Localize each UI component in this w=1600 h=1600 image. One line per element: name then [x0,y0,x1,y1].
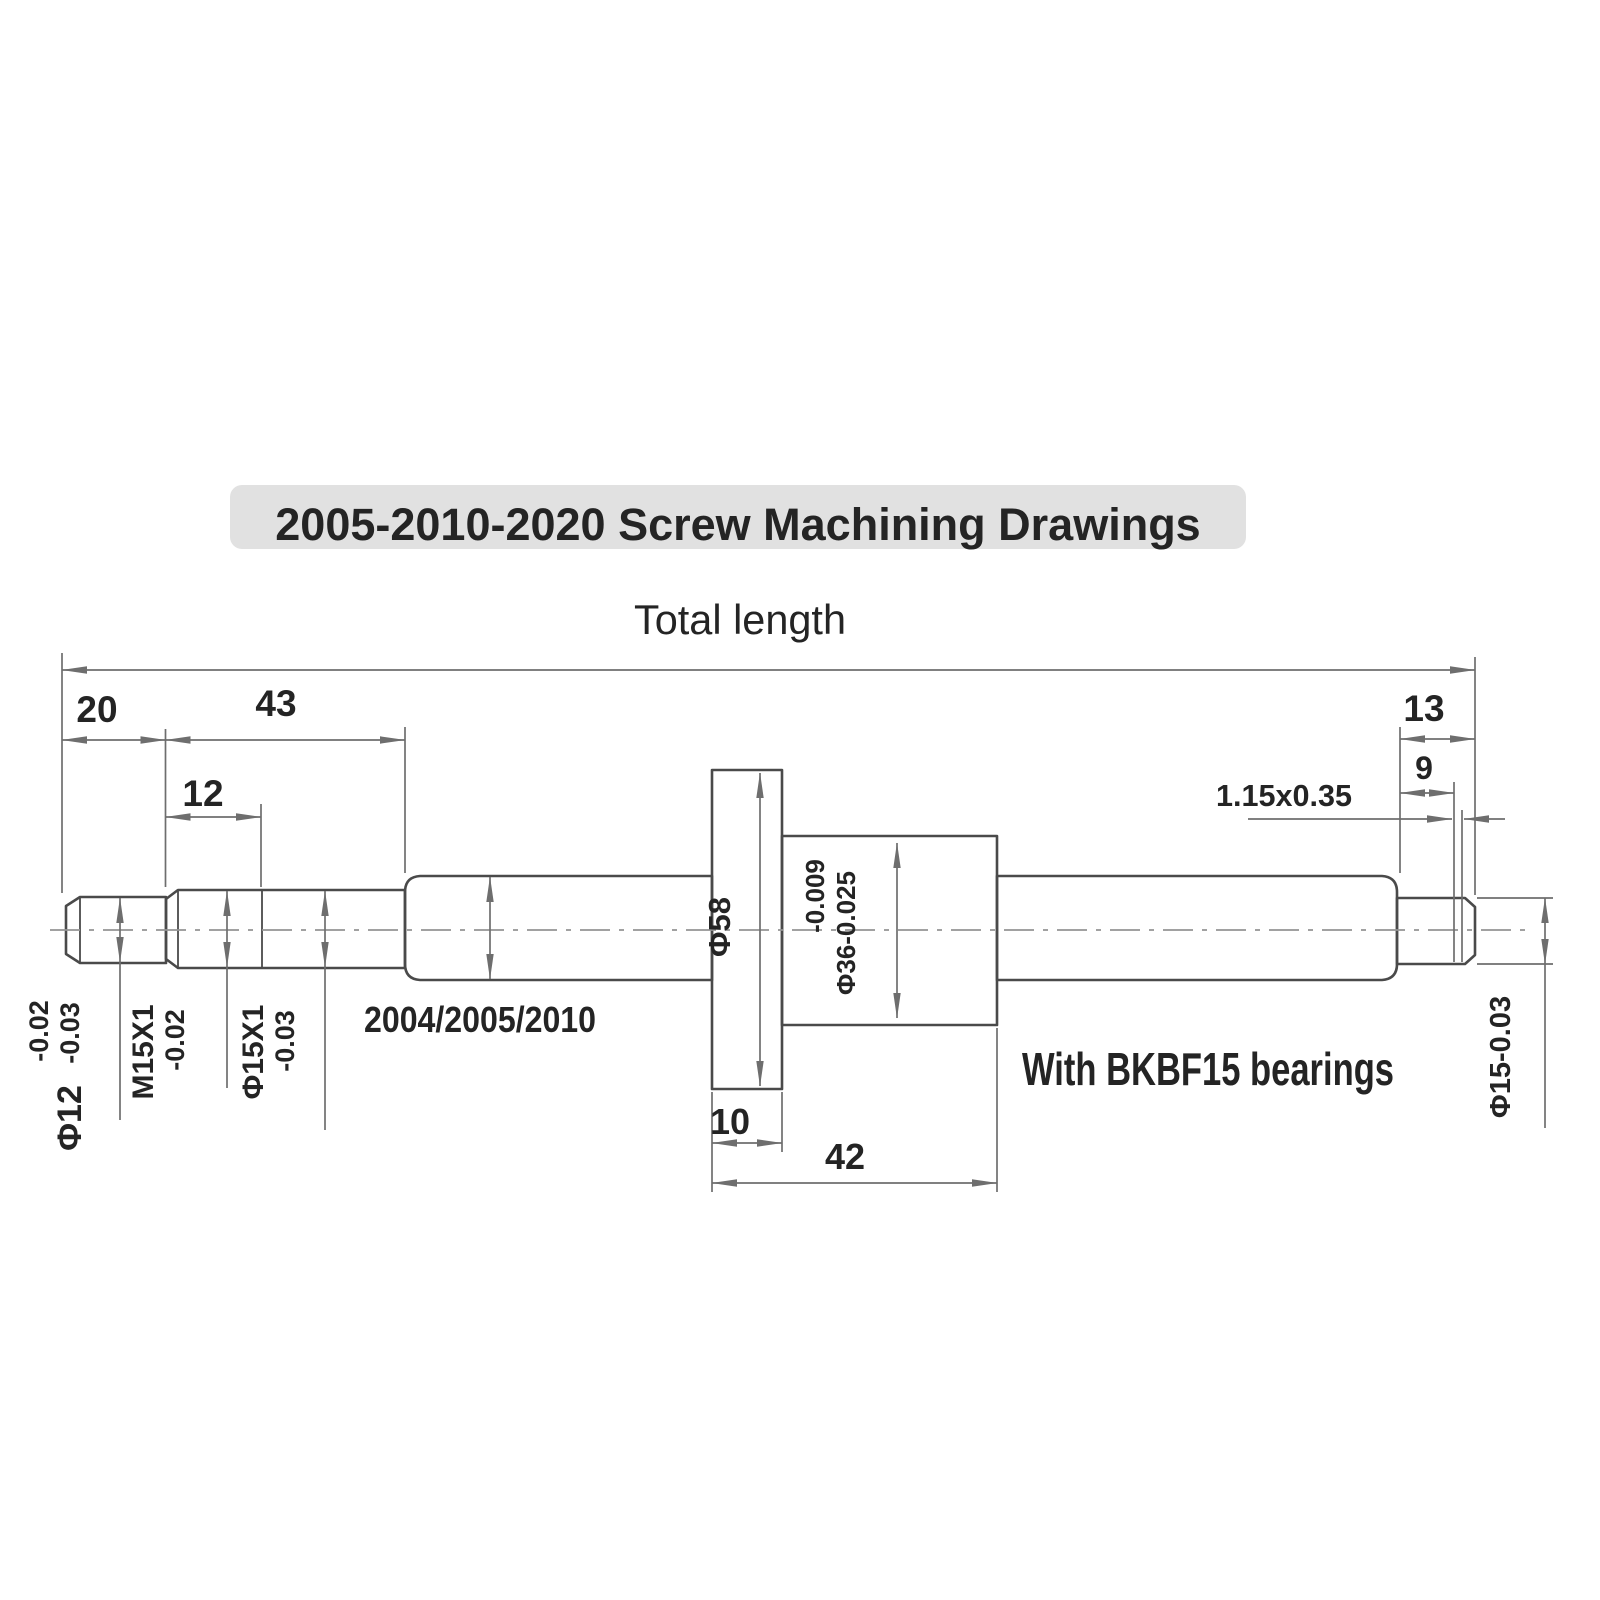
dim-text-13: 13 [1403,688,1444,729]
screw-types-label: 2004/2005/2010 [364,999,596,1040]
label-phi12-base: Φ12 [51,1085,89,1151]
label-phi12-tol-upper: -0.02 [24,1000,54,1062]
dim-text-43: 43 [255,683,296,724]
label-phi58: Φ58 [702,897,737,957]
label-m15x1-tol: -0.02 [160,1009,190,1071]
page-background [0,0,1600,1600]
dim-text-12: 12 [182,773,223,814]
label-phi15-right: Φ15-0.03 [1485,996,1517,1118]
dim-text-10: 10 [710,1101,750,1142]
label-phi15x1: Φ15X1 [237,1005,270,1100]
label-phi36-tol-upper: -0.009 [800,859,830,933]
dim-text-9: 9 [1415,750,1433,786]
drawing-canvas: 2005-2010-2020 Screw Machining Drawings [0,0,1600,1600]
page-title: 2005-2010-2020 Screw Machining Drawings [275,499,1200,550]
groove-note-label: 1.15x0.35 [1216,778,1352,813]
total-length-label: Total length [634,596,846,643]
dim-text-42: 42 [825,1136,865,1177]
label-m15x1: M15X1 [127,1004,160,1099]
title-banner: 2005-2010-2020 Screw Machining Drawings [230,485,1246,550]
bearings-note-label: With BKBF15 bearings [1022,1043,1394,1095]
dim-text-20: 20 [76,689,117,730]
label-phi12-tol-lower: -0.03 [55,1002,85,1064]
label-phi36-base: Φ36-0.025 [831,871,861,995]
label-phi15x1-tol: -0.03 [270,1010,300,1072]
